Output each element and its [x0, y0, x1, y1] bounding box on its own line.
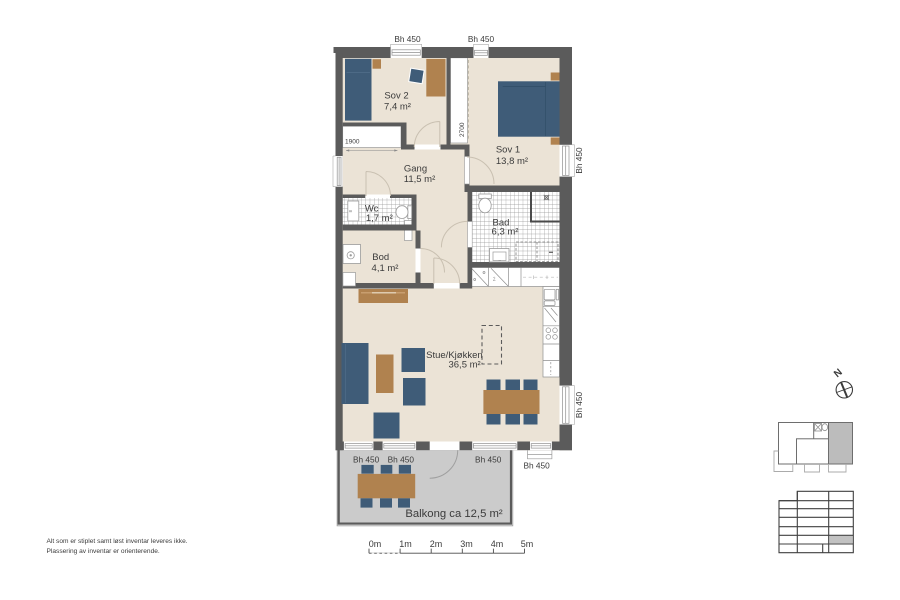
- svg-text:N: N: [832, 367, 845, 380]
- svg-text:Bh 450: Bh 450: [388, 455, 415, 465]
- svg-text:Bh 450: Bh 450: [394, 34, 421, 44]
- svg-text:11,5 m²: 11,5 m²: [404, 174, 436, 185]
- svg-text:13,8 m²: 13,8 m²: [496, 156, 528, 167]
- svg-text:2m: 2m: [430, 539, 443, 549]
- svg-text:0m: 0m: [369, 539, 382, 549]
- svg-text:Bh 450: Bh 450: [353, 455, 380, 465]
- svg-text:5m: 5m: [521, 539, 534, 549]
- svg-text:Bh 450: Bh 450: [574, 147, 584, 174]
- svg-text:1m: 1m: [399, 539, 412, 549]
- svg-text:Bod: Bod: [372, 252, 389, 263]
- svg-text:Bh 450: Bh 450: [574, 391, 584, 418]
- svg-text:7,4 m²: 7,4 m²: [384, 102, 411, 113]
- svg-text:4,1 m²: 4,1 m²: [372, 263, 399, 274]
- svg-text:1,7 m²: 1,7 m²: [366, 213, 393, 224]
- svg-text:Bh 450: Bh 450: [468, 34, 495, 44]
- svg-text:Bh 450: Bh 450: [475, 455, 502, 465]
- svg-text:1900: 1900: [345, 139, 360, 146]
- svg-text:4m: 4m: [491, 539, 504, 549]
- svg-text:3m: 3m: [460, 539, 473, 549]
- svg-text:Bh 450: Bh 450: [523, 460, 550, 470]
- svg-text:Alt som er stiplet samt løst i: Alt som er stiplet samt løst inventar le…: [47, 538, 188, 545]
- svg-text:6,3 m²: 6,3 m²: [492, 227, 519, 238]
- svg-text:Sov 2: Sov 2: [384, 90, 408, 101]
- svg-text:Gang: Gang: [404, 163, 427, 174]
- svg-text:2700: 2700: [459, 122, 466, 137]
- svg-text:Plassering av inventar er orie: Plassering av inventar er orienterende.: [47, 548, 160, 555]
- svg-text:Balkong ca 12,5 m²: Balkong ca 12,5 m²: [405, 508, 503, 520]
- svg-text:36,5 m²: 36,5 m²: [448, 360, 480, 371]
- svg-text:Sov 1: Sov 1: [496, 145, 520, 156]
